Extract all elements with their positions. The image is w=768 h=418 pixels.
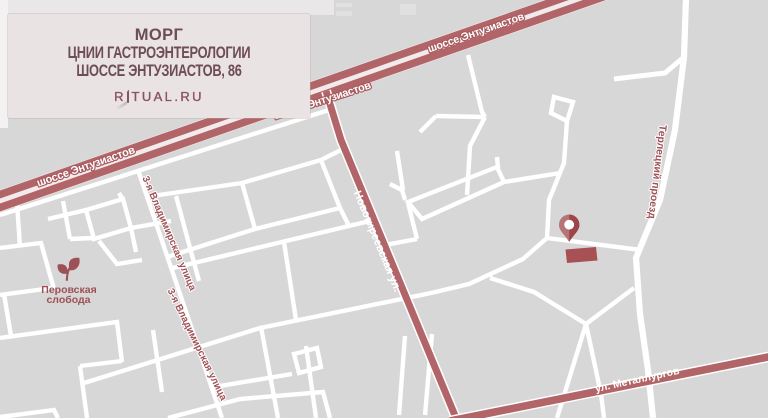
svg-text:слобода: слобода <box>46 294 90 306</box>
